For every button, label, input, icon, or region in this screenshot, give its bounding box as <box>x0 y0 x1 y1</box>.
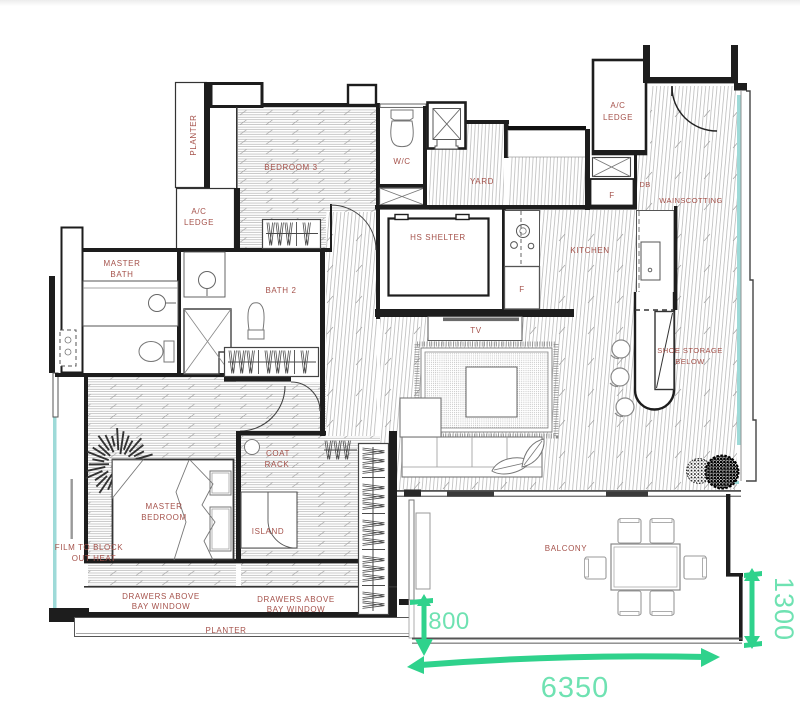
svg-text:BAY WINDOW: BAY WINDOW <box>267 605 326 614</box>
svg-text:DRAWERS ABOVE: DRAWERS ABOVE <box>257 595 335 604</box>
svg-text:BALCONY: BALCONY <box>545 544 587 553</box>
svg-text:BELOW: BELOW <box>675 357 705 366</box>
svg-text:W/C: W/C <box>393 157 410 166</box>
svg-text:TV: TV <box>470 326 481 335</box>
svg-text:BEDROOM 3: BEDROOM 3 <box>264 163 317 172</box>
svg-text:ISLAND: ISLAND <box>252 527 285 536</box>
svg-text:BATH: BATH <box>110 270 133 279</box>
svg-text:MASTER: MASTER <box>146 502 183 511</box>
svg-text:6350: 6350 <box>541 672 610 704</box>
svg-text:KITCHEN: KITCHEN <box>570 246 609 255</box>
svg-text:DB: DB <box>639 180 650 189</box>
svg-text:HS SHELTER: HS SHELTER <box>410 233 466 242</box>
svg-text:A/C: A/C <box>610 101 625 110</box>
svg-text:PLANTER: PLANTER <box>189 114 198 155</box>
svg-text:YARD: YARD <box>470 177 494 186</box>
svg-text:BEDROOM: BEDROOM <box>141 513 187 522</box>
svg-text:COAT: COAT <box>266 449 290 458</box>
svg-text:800: 800 <box>428 608 470 635</box>
svg-text:A/C: A/C <box>191 207 206 216</box>
svg-text:WAINSCOTTING: WAINSCOTTING <box>659 196 723 205</box>
svg-text:BAY WINDOW: BAY WINDOW <box>132 602 191 611</box>
svg-text:OUT HEAT: OUT HEAT <box>72 554 117 563</box>
svg-text:FILM TO BLOCK: FILM TO BLOCK <box>55 543 123 552</box>
svg-text:RACK: RACK <box>265 460 290 469</box>
svg-text:PLANTER: PLANTER <box>205 626 246 635</box>
svg-text:SHOE STORAGE: SHOE STORAGE <box>657 346 722 355</box>
svg-text:LEDGE: LEDGE <box>184 218 214 227</box>
svg-text:1300: 1300 <box>769 577 799 641</box>
svg-text:BATH 2: BATH 2 <box>265 286 296 295</box>
svg-text:MASTER: MASTER <box>104 259 141 268</box>
svg-text:DRAWERS ABOVE: DRAWERS ABOVE <box>122 592 200 601</box>
svg-text:F: F <box>609 191 615 200</box>
svg-text:LEDGE: LEDGE <box>603 113 633 122</box>
svg-text:F: F <box>519 285 525 294</box>
